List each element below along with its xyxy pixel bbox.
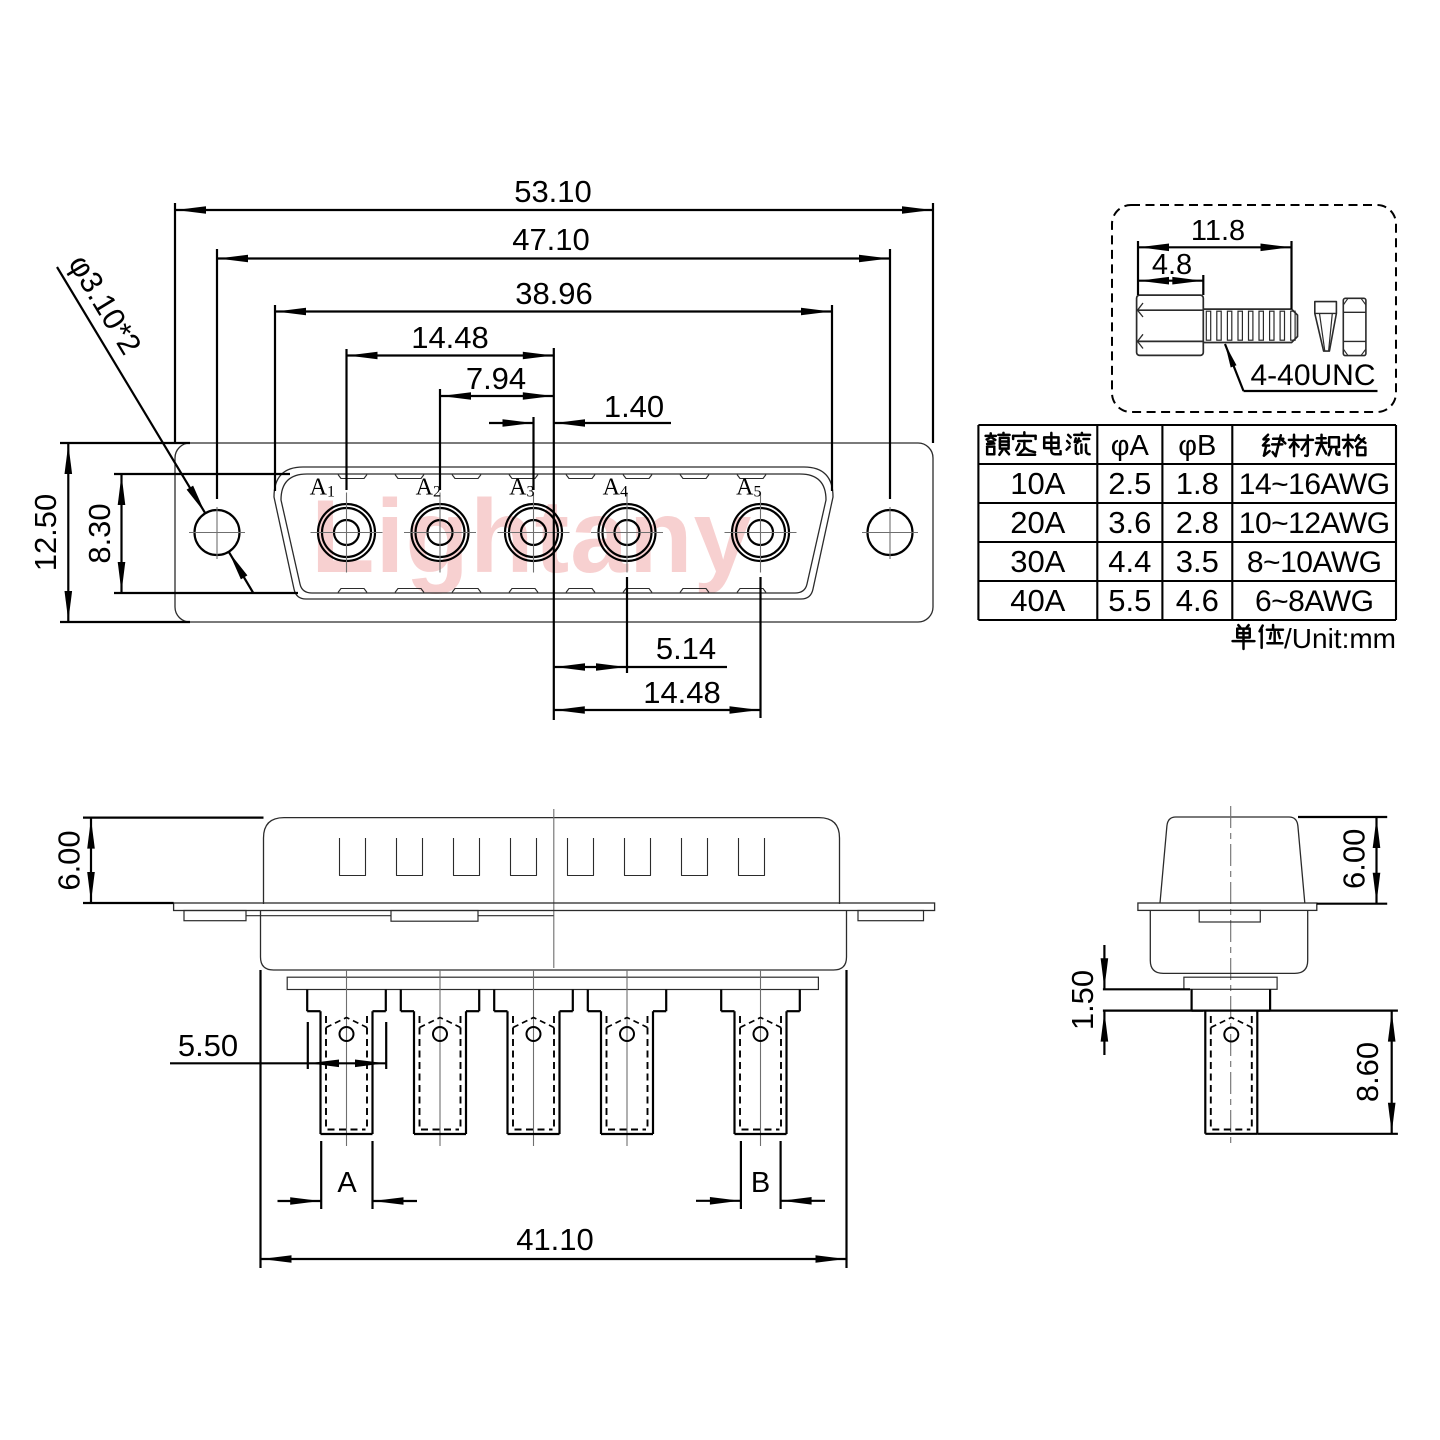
svg-text:2.5: 2.5 <box>1108 466 1151 501</box>
svg-text:4.6: 4.6 <box>1176 583 1219 618</box>
svg-text:4-40UNC: 4-40UNC <box>1250 359 1375 392</box>
svg-text:53.10: 53.10 <box>514 174 592 209</box>
svg-text:φB: φB <box>1178 430 1216 462</box>
svg-text:40A: 40A <box>1010 583 1065 618</box>
svg-text:4.4: 4.4 <box>1108 544 1151 579</box>
svg-text:4.8: 4.8 <box>1152 249 1192 281</box>
svg-text:5.14: 5.14 <box>656 631 716 666</box>
svg-text:8.30: 8.30 <box>82 503 117 563</box>
svg-text:14.48: 14.48 <box>643 675 721 710</box>
svg-text:7.94: 7.94 <box>466 361 526 396</box>
svg-text:47.10: 47.10 <box>512 222 590 257</box>
svg-text:14~16AWG: 14~16AWG <box>1239 468 1390 501</box>
svg-text:1.40: 1.40 <box>604 389 664 424</box>
svg-text:6~8AWG: 6~8AWG <box>1255 585 1373 618</box>
svg-text:/Unit:mm: /Unit:mm <box>1284 623 1396 654</box>
svg-text:10~12AWG: 10~12AWG <box>1239 507 1390 540</box>
svg-text:20A: 20A <box>1010 505 1065 540</box>
svg-text:8.60: 8.60 <box>1350 1042 1385 1102</box>
svg-text:5.50: 5.50 <box>178 1028 238 1063</box>
svg-text:2.8: 2.8 <box>1176 505 1219 540</box>
svg-text:5.5: 5.5 <box>1108 583 1151 618</box>
svg-text:41.10: 41.10 <box>516 1222 594 1257</box>
svg-text:6.00: 6.00 <box>52 830 87 890</box>
svg-text:14.48: 14.48 <box>411 320 489 355</box>
svg-text:6.00: 6.00 <box>1337 829 1372 889</box>
svg-text:8~10AWG: 8~10AWG <box>1247 546 1382 579</box>
svg-text:30A: 30A <box>1010 544 1065 579</box>
svg-text:38.96: 38.96 <box>515 276 593 311</box>
svg-text:1.50: 1.50 <box>1065 970 1100 1030</box>
svg-text:3.6: 3.6 <box>1108 505 1151 540</box>
svg-text:φA: φA <box>1111 430 1150 462</box>
svg-text:10A: 10A <box>1010 466 1065 501</box>
svg-text:B: B <box>751 1167 770 1199</box>
svg-text:1.8: 1.8 <box>1176 466 1219 501</box>
svg-text:12.50: 12.50 <box>28 494 63 572</box>
svg-text:3.5: 3.5 <box>1176 544 1219 579</box>
svg-text:A: A <box>337 1167 357 1199</box>
svg-text:11.8: 11.8 <box>1191 215 1245 247</box>
